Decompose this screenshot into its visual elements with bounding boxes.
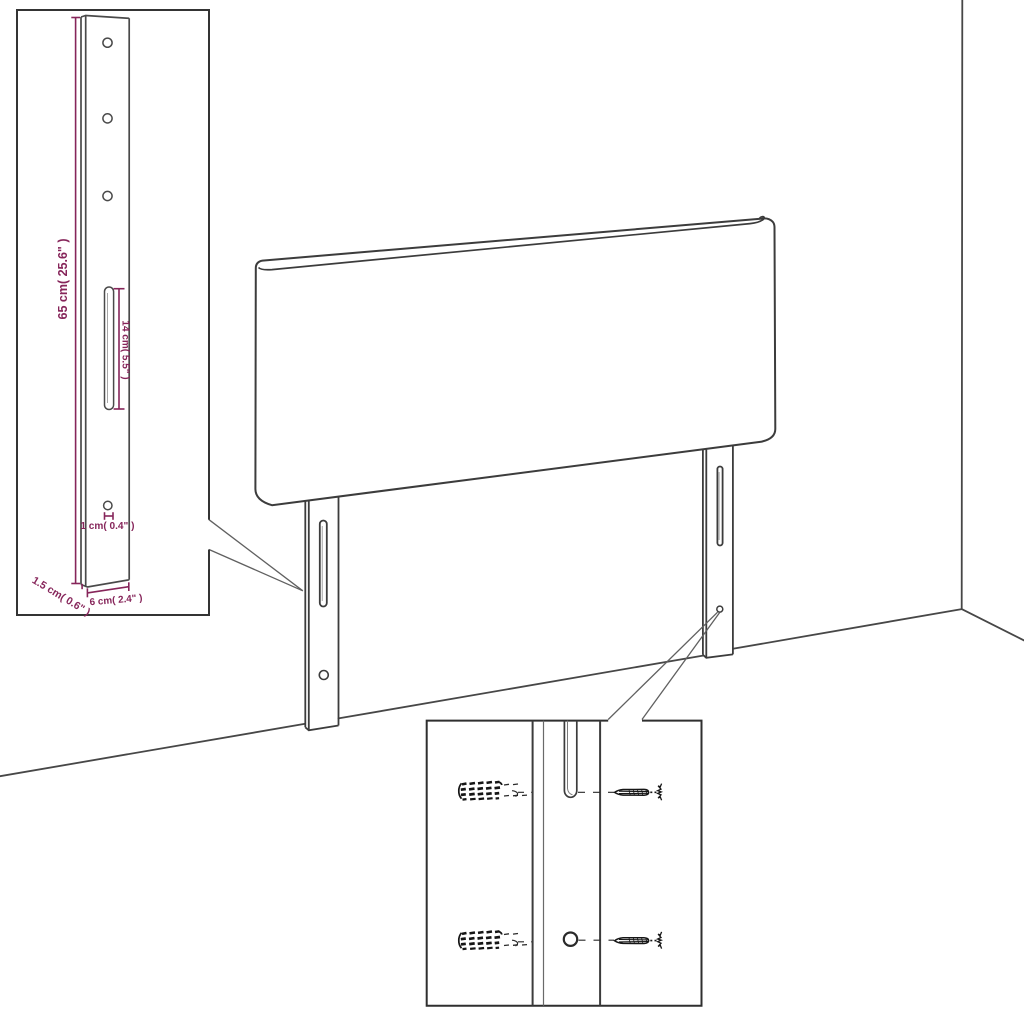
svg-text:1.5 cm( 0.6" ): 1.5 cm( 0.6" ) <box>30 574 92 618</box>
svg-text:6 cm( 2.4" ): 6 cm( 2.4" ) <box>89 593 143 609</box>
svg-text:65 cm( 25.6" ): 65 cm( 25.6" ) <box>56 239 70 320</box>
svg-text:14 cm( 5.5" ): 14 cm( 5.5" ) <box>120 320 131 379</box>
svg-text:1 cm( 0.4" ): 1 cm( 0.4" ) <box>80 521 134 532</box>
